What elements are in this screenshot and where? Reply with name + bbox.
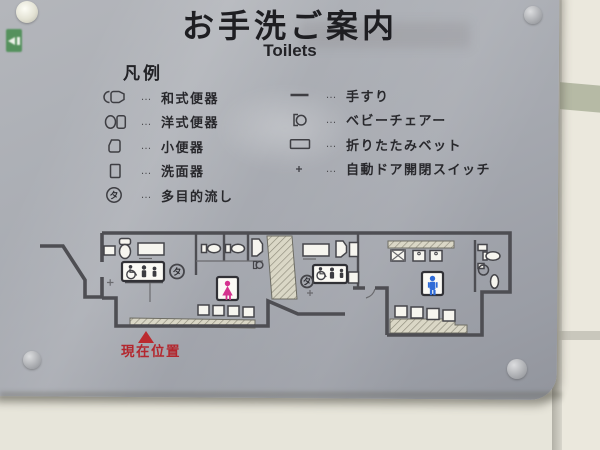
washbasin	[228, 306, 239, 316]
washbasin	[443, 310, 455, 321]
legend-right-column: … 手すり … ベビーチェアー … 折りたたみベット … 自動ドア開閉スイッチ	[288, 86, 491, 184]
child-figure-icon	[340, 269, 344, 278]
screw-bottom-right	[507, 359, 527, 379]
current-location-label: 現在位置	[121, 343, 181, 359]
folding-bed	[138, 243, 164, 255]
photo-of-toilet-guide-sign: お手洗ご案内 Toilets 凡例 … 和式便器 … 洋式便器 … 小便器	[0, 0, 600, 450]
squat-toilet-icon	[103, 88, 133, 106]
legend-dots: …	[133, 165, 161, 177]
exit-sign-reflection	[6, 29, 22, 52]
floor-plan: タ	[35, 225, 515, 360]
legend-item-western-toilet: … 洋式便器	[103, 113, 234, 132]
toilet-cistern	[226, 245, 231, 253]
legend-item-door-switch: … 自動ドア開閉スイッチ	[288, 160, 491, 179]
baby-chair	[256, 262, 263, 269]
screw-top-right	[524, 6, 542, 24]
squat-toilet	[252, 239, 263, 256]
washbasin	[213, 306, 224, 316]
legend-label: ベビーチェアー	[346, 110, 447, 129]
corridor-wall	[40, 246, 102, 297]
child-figure-icon	[153, 267, 157, 277]
wall-tile-band	[560, 82, 600, 113]
toilet-cistern	[202, 245, 207, 253]
legend-item-squat-toilet: … 和式便器	[103, 88, 234, 107]
exit-arrow-icon	[8, 37, 15, 45]
wall-tile-joint-horizontal	[558, 331, 600, 340]
sign-subtitle: Toilets	[138, 41, 442, 61]
legend-label: 和式便器	[161, 88, 219, 107]
toilet-cistern	[120, 239, 131, 245]
washbasin	[395, 306, 407, 317]
washbasin	[104, 246, 115, 255]
legend-dots: …	[133, 189, 161, 201]
legend-dots: …	[318, 114, 346, 126]
wall-tile	[562, 0, 600, 450]
western-toilet-icon	[103, 113, 133, 131]
folding-bed	[303, 244, 329, 256]
legend-label: 多目的流し	[161, 186, 234, 205]
multipurpose-sink-icon: タ	[103, 186, 133, 204]
mens-lower-wall	[353, 288, 387, 335]
legend-label: 自動ドア開閉スイッチ	[346, 159, 491, 178]
current-location-marker	[138, 331, 154, 343]
washbasin	[350, 243, 359, 257]
legend-dots: …	[318, 138, 346, 150]
door-switch-mark	[307, 290, 313, 296]
svg-text:タ: タ	[109, 190, 118, 201]
baby-chair-icon	[288, 111, 318, 129]
adult-figure-icon	[142, 265, 146, 277]
western-toilet	[486, 252, 500, 261]
washbasin	[411, 307, 423, 318]
legend-heading: 凡例	[123, 59, 163, 84]
middle-accessible-room: タ	[301, 241, 359, 296]
womens-room	[198, 239, 263, 317]
middle-door-swing	[366, 289, 375, 298]
legend-item-urinal: … 小便器	[103, 137, 234, 156]
screw-top-left	[16, 1, 38, 23]
adult-figure-icon	[330, 268, 334, 279]
urinal-icon	[103, 137, 133, 155]
legend-item-folding-bed: … 折りたたみベット	[288, 135, 491, 154]
washbasin-icon	[103, 162, 133, 180]
door-switch-mark	[107, 279, 114, 286]
legend-left-column: … 和式便器 … 洋式便器 … 小便器 … 洗面器 タ	[103, 88, 234, 211]
legend-item-handrail: … 手すり	[288, 86, 491, 105]
western-toilet	[208, 244, 221, 252]
legend-label: 手すり	[346, 86, 390, 105]
legend-item-baby-chair: … ベビーチェアー	[288, 111, 491, 130]
legend-dots: …	[318, 163, 346, 175]
shelf	[349, 272, 359, 283]
squat-toilet	[336, 241, 347, 257]
hatched-shaft-area	[267, 236, 297, 299]
mens-top-hatch	[388, 241, 454, 248]
panel-shadow	[0, 392, 562, 404]
legend-label: 洗面器	[161, 161, 205, 180]
legend-label: 洋式便器	[161, 112, 219, 131]
legend-item-multipurpose-sink: タ … 多目的流し	[103, 186, 234, 205]
legend-label: 小便器	[161, 137, 205, 156]
washbasin	[198, 305, 209, 315]
switch-box	[478, 245, 487, 251]
legend-label: 折りたたみベット	[346, 135, 462, 154]
legend-dots: …	[133, 91, 161, 103]
door-switch-icon	[288, 160, 318, 178]
western-toilet	[232, 244, 245, 252]
legend-dots: …	[133, 140, 161, 152]
left-accessible-room: タ	[104, 239, 184, 286]
exit-door-icon	[17, 37, 20, 45]
multipurpose-mark: タ	[172, 266, 181, 277]
legend-item-washbasin: … 洗面器	[103, 162, 234, 181]
urinal	[491, 275, 499, 289]
handrail-icon	[288, 86, 318, 104]
multipurpose-mark: タ	[303, 277, 312, 287]
legend-dots: …	[133, 116, 161, 128]
western-toilet	[120, 245, 131, 259]
washbasin	[243, 307, 254, 317]
legend-dots: …	[318, 89, 346, 101]
folding-bed-icon	[288, 135, 318, 153]
washbasin	[427, 309, 439, 320]
